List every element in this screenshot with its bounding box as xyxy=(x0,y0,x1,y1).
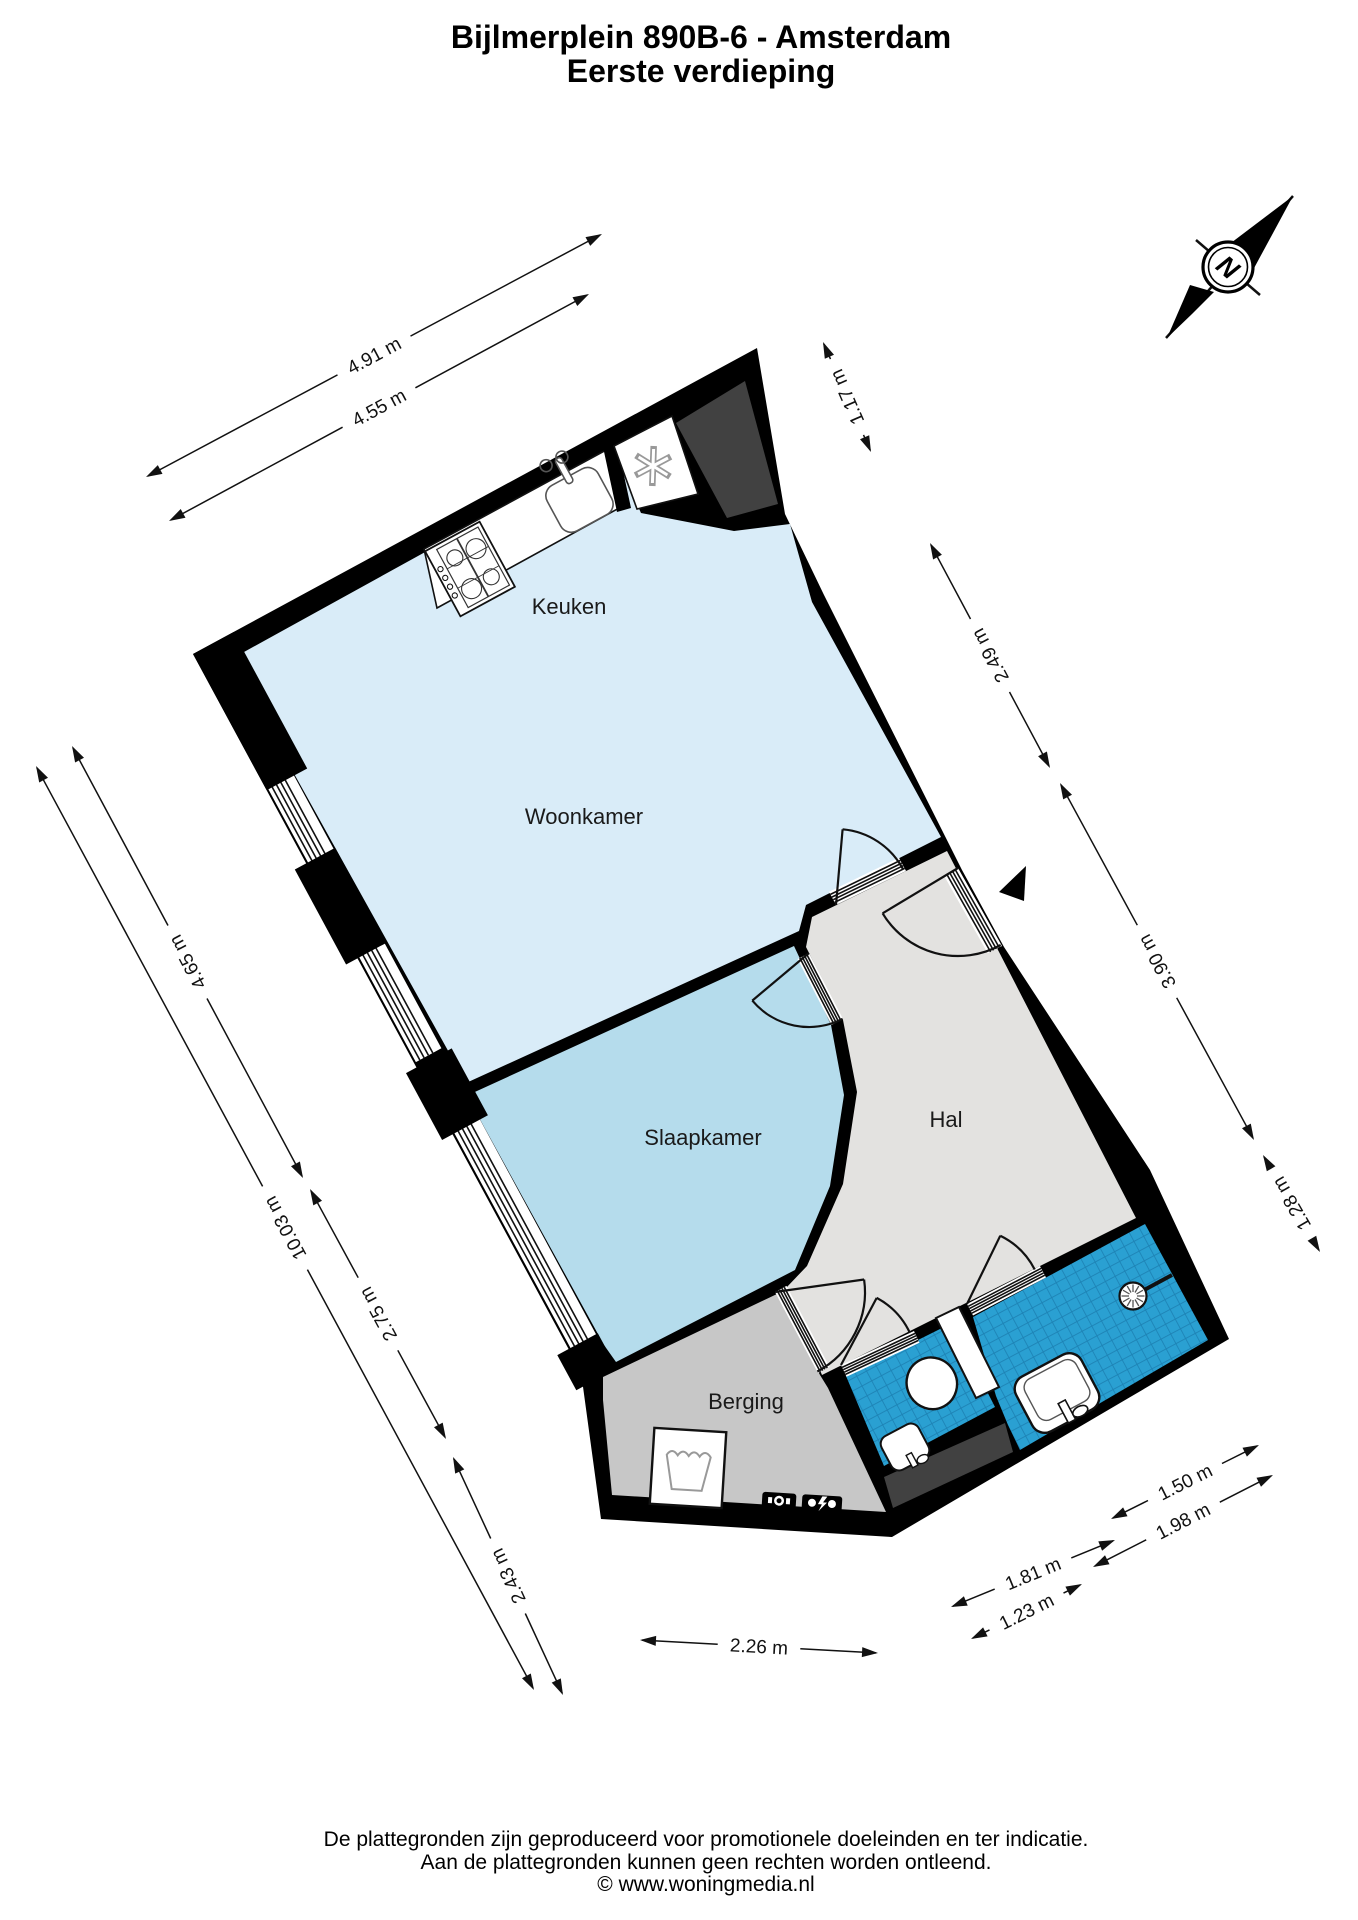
svg-text:Woonkamer: Woonkamer xyxy=(525,804,643,829)
svg-text:1.23 m: 1.23 m xyxy=(996,1590,1057,1635)
svg-text:Aan de plattegronden kunnen ge: Aan de plattegronden kunnen geen rechten… xyxy=(421,1851,992,1874)
svg-text:1.81 m: 1.81 m xyxy=(1003,1554,1065,1595)
svg-text:Slaapkamer: Slaapkamer xyxy=(644,1125,761,1150)
svg-text:Eerste verdieping: Eerste verdieping xyxy=(567,53,836,89)
svg-text:2.49 m: 2.49 m xyxy=(968,624,1014,685)
svg-text:2.43 m: 2.43 m xyxy=(487,1545,531,1607)
svg-text:Berging: Berging xyxy=(708,1389,784,1414)
svg-text:© www.woningmedia.nl: © www.woningmedia.nl xyxy=(597,1873,814,1896)
svg-text:1.17 m: 1.17 m xyxy=(827,366,870,428)
svg-text:3.90 m: 3.90 m xyxy=(1135,930,1181,991)
svg-text:1.28 m: 1.28 m xyxy=(1269,1173,1316,1234)
svg-text:2.26 m: 2.26 m xyxy=(729,1635,788,1659)
svg-text:10.03 m: 10.03 m xyxy=(260,1192,311,1262)
svg-text:4.65 m: 4.65 m xyxy=(165,931,211,992)
svg-text:Hal: Hal xyxy=(929,1107,962,1132)
svg-text:Bijlmerplein 890B-6 - Amsterda: Bijlmerplein 890B-6 - Amsterdam xyxy=(451,19,951,55)
svg-text:4.55 m: 4.55 m xyxy=(349,385,410,431)
svg-text:1.50 m: 1.50 m xyxy=(1155,1460,1216,1505)
svg-text:4.91 m: 4.91 m xyxy=(344,333,405,379)
svg-text:De plattegronden zijn geproduc: De plattegronden zijn geproduceerd voor … xyxy=(324,1828,1089,1851)
svg-text:2.75 m: 2.75 m xyxy=(356,1283,402,1344)
svg-text:Keuken: Keuken xyxy=(532,594,607,619)
svg-text:1.98 m: 1.98 m xyxy=(1153,1499,1214,1544)
